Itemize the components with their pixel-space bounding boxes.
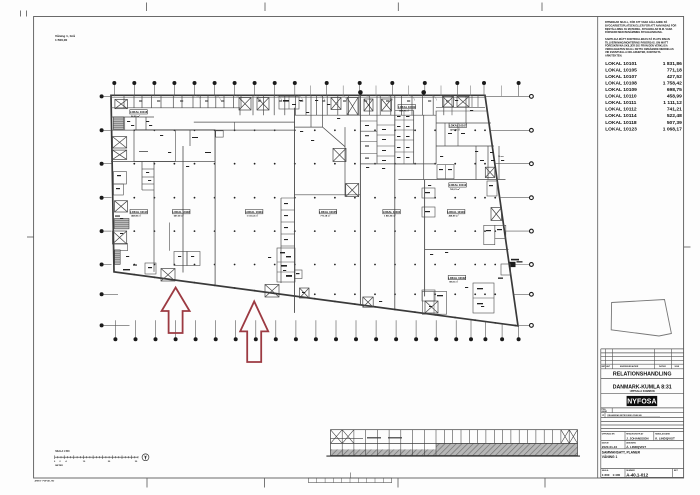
svg-text:VÅNING 1: VÅNING 1 [602, 454, 618, 459]
svg-text:SKALA 1:500: SKALA 1:500 [55, 450, 70, 453]
svg-text:507,39: 507,39 [667, 120, 682, 126]
svg-text:Å. LINDQVIST: Å. LINDQVIST [655, 436, 675, 441]
svg-text:LOKAL 10110: LOKAL 10110 [130, 210, 148, 214]
svg-text:HANDLÄGGARE: HANDLÄGGARE [655, 432, 671, 435]
svg-text:LOKAL 10102: LOKAL 10102 [448, 276, 466, 280]
svg-text:427,52 m²: 427,52 m² [450, 128, 460, 131]
svg-text:FÖRSEDD MED BENÄMNING BYGGHAND: FÖRSEDD MED BENÄMNING BYGGHANDLING. [605, 30, 663, 34]
svg-text:SKALA: SKALA [602, 469, 609, 472]
svg-text:1 831,86 m²: 1 831,86 m² [384, 215, 396, 218]
svg-text:LOKAL 10105: LOKAL 10105 [605, 67, 637, 73]
svg-text:LOKAL 10101: LOKAL 10101 [383, 210, 401, 214]
svg-text:SIGN: SIGN [675, 366, 680, 368]
svg-text:RELATIONSHANDLING: RELATIONSHANDLING [613, 372, 672, 378]
svg-text:Å. LINDQVIST: Å. LINDQVIST [626, 444, 646, 449]
svg-text:458,99 m²: 458,99 m² [131, 215, 141, 218]
svg-text:1 758,42: 1 758,42 [663, 80, 682, 86]
svg-text:LOKAL 10111: LOKAL 10111 [246, 210, 264, 214]
svg-text:1 111,12: 1 111,12 [663, 100, 682, 106]
svg-text:771,18 m²: 771,18 m² [320, 215, 330, 218]
svg-text:698,75: 698,75 [667, 87, 682, 93]
svg-text:NYFOSA: NYFOSA [627, 399, 656, 406]
svg-text:LOKAL 10109: LOKAL 10109 [605, 87, 637, 93]
svg-text:J. JOHANSSON: J. JOHANSSON [626, 437, 648, 441]
svg-text:LOKAL 10107: LOKAL 10107 [449, 124, 467, 128]
svg-text:96,99 m²: 96,99 m² [131, 115, 140, 118]
svg-text:RELÄMERAD BETECKNING FRÅN HB: RELÄMERAD BETECKNING FRÅN HB [608, 414, 643, 417]
svg-text:LOKAL 10110: LOKAL 10110 [605, 94, 637, 100]
svg-text:1:400: 1:400 [613, 473, 621, 477]
svg-text:10 mm: 10 mm [498, 156, 504, 158]
svg-text:LOKAL 10123: LOKAL 10123 [605, 126, 637, 132]
svg-text:LOKAL 10101: LOKAL 10101 [605, 61, 637, 67]
svg-text:ÄNDRINGEN AVSER: ÄNDRINGEN AVSER [620, 365, 639, 368]
svg-text:A: A [602, 414, 604, 417]
svg-text:LOKAL 10111: LOKAL 10111 [605, 100, 636, 106]
svg-text:LOKAL 10108: LOKAL 10108 [605, 80, 637, 86]
svg-text:698,75 m²: 698,75 m² [399, 110, 409, 113]
svg-text:UPPDRAG NR: UPPDRAG NR [602, 432, 615, 435]
svg-text:UPPSALA KOMMUN: UPPSALA KOMMUN [630, 389, 655, 393]
svg-text:507,39 m²: 507,39 m² [174, 215, 184, 218]
svg-text:METER: METER [55, 465, 63, 467]
svg-text:741,21 m²: 741,21 m² [450, 188, 460, 191]
svg-text:1:200: 1:200 [602, 473, 610, 477]
svg-text:DATUM: DATUM [659, 365, 666, 368]
svg-text:1:500,00: 1:500,00 [55, 38, 67, 42]
svg-text:ARKITEKTEN.: ARKITEKTEN. [605, 54, 622, 58]
svg-text:2020-01-10: 2020-01-10 [602, 445, 618, 449]
svg-text:RITAD/KONSTR AV: RITAD/KONSTR AV [626, 432, 644, 435]
svg-text:LOKAL 10118: LOKAL 10118 [173, 210, 191, 214]
svg-text:LOKAL 10112: LOKAL 10112 [449, 183, 467, 187]
svg-text:LOKAL 10110: LOKAL 10110 [447, 210, 465, 214]
svg-text:88,10 m²: 88,10 m² [449, 281, 458, 284]
svg-text:LOKAL 10107: LOKAL 10107 [605, 74, 637, 80]
svg-text:1 068,17: 1 068,17 [663, 126, 682, 132]
svg-text:LOKAL 10109: LOKAL 10109 [398, 105, 416, 109]
svg-text:LOKAL 10118: LOKAL 10118 [605, 120, 637, 126]
svg-text:1 111,12 m²: 1 111,12 m² [247, 215, 259, 218]
svg-text:LOKAL 10112: LOKAL 10112 [605, 107, 637, 113]
svg-text:LOKAL 10114: LOKAL 10114 [605, 113, 637, 119]
svg-text:741,21: 741,21 [667, 107, 682, 113]
svg-text:427,52: 427,52 [667, 74, 682, 80]
svg-text:NUMR: NUMR [602, 411, 608, 413]
svg-text:458,99: 458,99 [667, 94, 682, 100]
svg-text:1 831,86: 1 831,86 [663, 61, 682, 67]
svg-text:ARKIV PDF/A1-HD: ARKIV PDF/A1-HD [35, 480, 55, 483]
svg-text:771,18: 771,18 [667, 67, 682, 73]
svg-text:LOKAL 10105: LOKAL 10105 [319, 210, 337, 214]
svg-text:LOKAL 10116: LOKAL 10116 [130, 110, 148, 114]
svg-text:A-40.1-012: A-40.1-012 [626, 472, 649, 477]
svg-text:522,48: 522,48 [667, 113, 682, 119]
svg-text:SAMMANSATT, PLANER: SAMMANSATT, PLANER [602, 450, 641, 454]
svg-text:458,99 m²: 458,99 m² [449, 215, 459, 218]
